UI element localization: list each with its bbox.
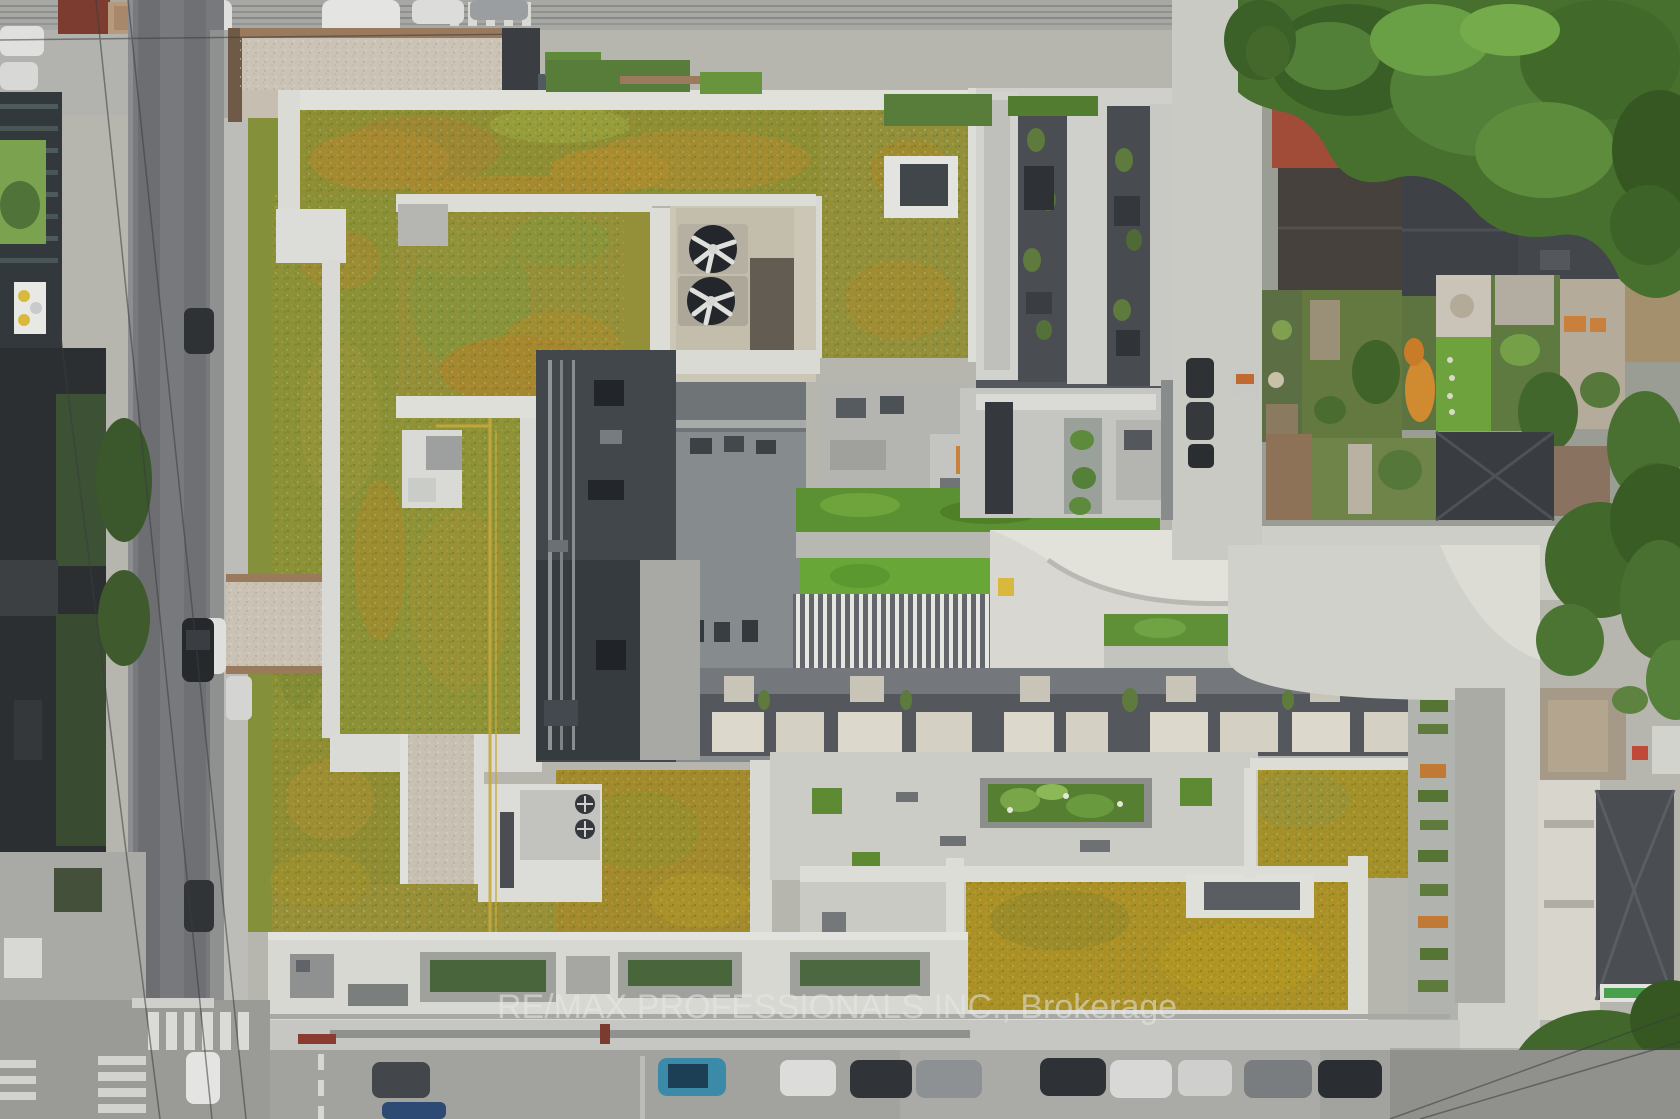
- svg-text:RE/MAX PROFESSIONALS INC., Bro: RE/MAX PROFESSIONALS INC., Brokerage: [497, 988, 1177, 1026]
